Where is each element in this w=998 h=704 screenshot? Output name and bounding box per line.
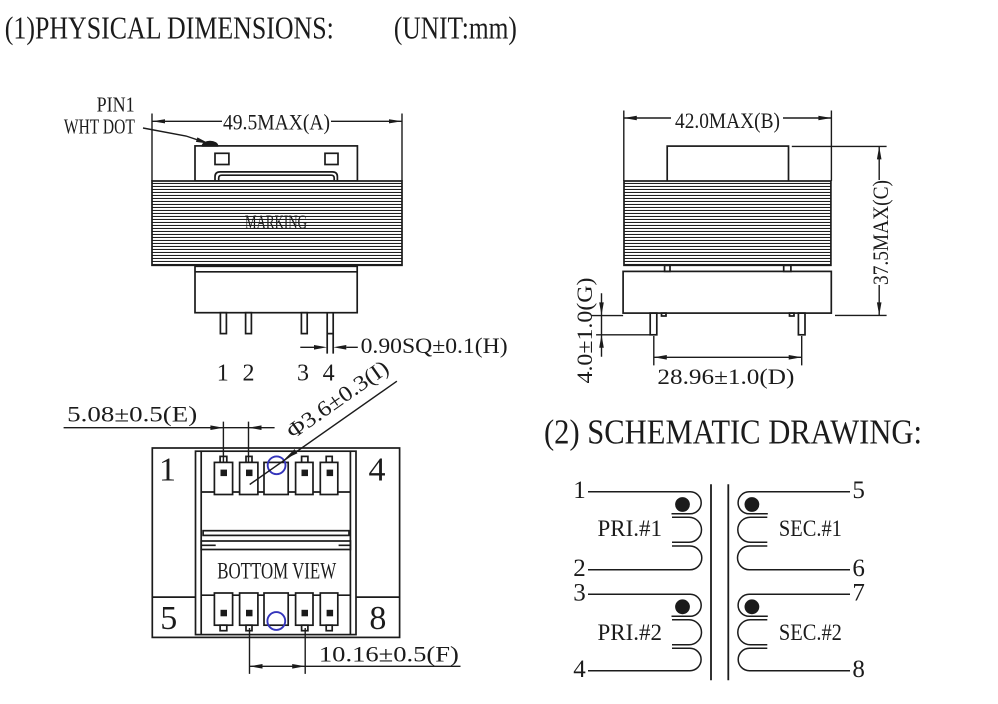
svg-text:(1)PHYSICAL DIMENSIONS:: (1)PHYSICAL DIMENSIONS: (5, 10, 334, 46)
svg-text:0.90SQ±0.1(H): 0.90SQ±0.1(H) (361, 333, 508, 358)
svg-text:(UNIT:mm): (UNIT:mm) (394, 10, 517, 46)
svg-text:1: 1 (159, 452, 176, 489)
svg-text:MARKING: MARKING (245, 212, 307, 234)
svg-text:28.96±1.0(D): 28.96±1.0(D) (657, 364, 794, 389)
svg-text:5.08±0.5(E): 5.08±0.5(E) (67, 402, 197, 427)
svg-text:1: 1 (573, 477, 586, 504)
svg-text:2: 2 (243, 361, 255, 387)
svg-text:WHT DOT: WHT DOT (64, 115, 135, 139)
svg-text:6: 6 (852, 555, 865, 582)
svg-text:4.0±1.0(G): 4.0±1.0(G) (572, 278, 597, 384)
svg-text:4: 4 (369, 452, 386, 489)
svg-text:42.0MAX(B): 42.0MAX(B) (675, 108, 780, 133)
svg-text:3: 3 (573, 579, 586, 606)
svg-text:10.16±0.5(F): 10.16±0.5(F) (319, 641, 459, 666)
svg-text:4: 4 (323, 361, 335, 387)
svg-text:4: 4 (573, 656, 586, 683)
svg-text:PRI.#2: PRI.#2 (598, 620, 663, 645)
svg-text:49.5MAX(A): 49.5MAX(A) (223, 110, 330, 135)
svg-text:8: 8 (852, 656, 865, 683)
svg-text:1: 1 (217, 361, 229, 387)
svg-text:37.5MAX(C): 37.5MAX(C) (868, 180, 893, 285)
svg-text:5: 5 (852, 477, 865, 504)
svg-text:8: 8 (369, 600, 386, 637)
svg-text:3: 3 (297, 361, 309, 387)
svg-text:7: 7 (852, 579, 865, 606)
svg-text:5: 5 (160, 600, 177, 637)
svg-text:PRI.#1: PRI.#1 (598, 516, 663, 541)
svg-text:BOTTOM VIEW: BOTTOM VIEW (217, 559, 336, 584)
svg-text:2: 2 (573, 555, 586, 582)
svg-text:SEC.#2: SEC.#2 (779, 620, 842, 645)
svg-text:SEC.#1: SEC.#1 (779, 516, 842, 541)
svg-text:(2) SCHEMATIC DRAWING:: (2) SCHEMATIC DRAWING: (544, 412, 922, 451)
svg-text:PIN1: PIN1 (97, 93, 135, 117)
